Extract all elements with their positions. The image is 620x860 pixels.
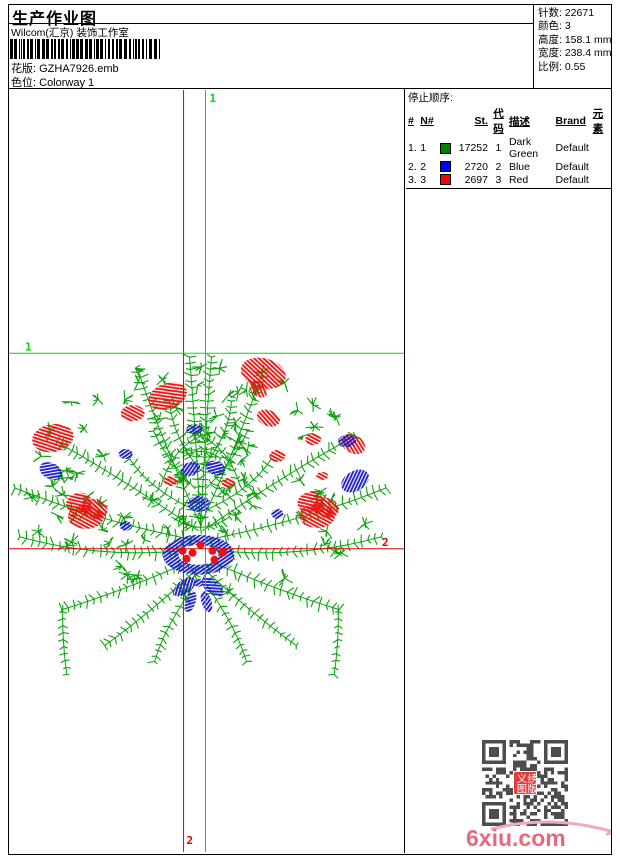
scale-row: 比例: 0.55 [538, 61, 611, 74]
table-row: 2. 2 2720 2 Blue Default [408, 160, 611, 173]
qr-code: 义绣图版 [482, 740, 568, 826]
design-info-box: 针数: 22671 颜色: 3 高度: 158.1 mm 宽度: 238.4 m… [533, 5, 611, 88]
barcode [10, 39, 162, 59]
table-row: 3. 3 2697 3 Red Default [408, 173, 611, 186]
title-divider [9, 23, 534, 24]
marker-1-top: 1 [209, 92, 216, 105]
col-n: N# [420, 106, 437, 136]
svg-text:版: 版 [527, 782, 537, 795]
colorway-label: 色位: [11, 77, 36, 89]
col-swatch [437, 106, 454, 136]
sheet-body: 1122 停止顺序: # N# St. 代码 描述 Brand 元素 [9, 89, 611, 853]
marker-2-bottom: 2 [187, 834, 194, 847]
production-worksheet-page: 生产作业图 Wilcom(汇京) 装饰工作室 花版: GZHA7926.emb … [8, 4, 612, 855]
embroidery-design-canvas: 1122 [9, 89, 405, 853]
width-row: 宽度: 238.4 mm [538, 47, 611, 60]
studio-name: Wilcom(汇京) 装饰工作室 [11, 25, 129, 40]
colorway-row: 色位: Colorway 1 [11, 74, 94, 90]
col-st: St. [455, 106, 488, 136]
sheet-header: 生产作业图 Wilcom(汇京) 装饰工作室 花版: GZHA7926.emb … [9, 5, 611, 89]
stop-sequence-block: 停止顺序: # N# St. 代码 描述 Brand 元素 1. 1 [406, 89, 611, 189]
color-swatch-red [440, 174, 451, 185]
col-brand: Brand [556, 106, 593, 136]
color-swatch-green [440, 143, 451, 154]
color-sequence-table: # N# St. 代码 描述 Brand 元素 1. 1 17252 [408, 106, 611, 186]
table-row: 1. 1 17252 1 Dark Green Default [408, 136, 611, 160]
watermark: 6xiu.com [464, 819, 612, 851]
col-code: 代码 [488, 106, 509, 136]
color-swatch-blue [440, 161, 451, 172]
marker-2-right: 2 [382, 536, 389, 549]
col-desc: 描述 [509, 106, 556, 136]
svg-text:图: 图 [517, 783, 527, 795]
marker-1-left: 1 [25, 340, 32, 353]
col-hash: # [408, 106, 420, 136]
height-row: 高度: 158.1 mm [538, 34, 611, 47]
watermark-text: 6xiu.com [466, 825, 566, 851]
color-count-row: 颜色: 3 [538, 20, 611, 33]
right-panel: 停止顺序: # N# St. 代码 描述 Brand 元素 1. 1 [406, 89, 611, 853]
stop-sequence-title: 停止顺序: [408, 90, 611, 105]
table-header-row: # N# St. 代码 描述 Brand 元素 [408, 106, 611, 136]
col-element: 元素 [593, 106, 611, 136]
colorway-value: Colorway 1 [39, 77, 94, 89]
stitch-count-row: 针数: 22671 [538, 7, 611, 20]
